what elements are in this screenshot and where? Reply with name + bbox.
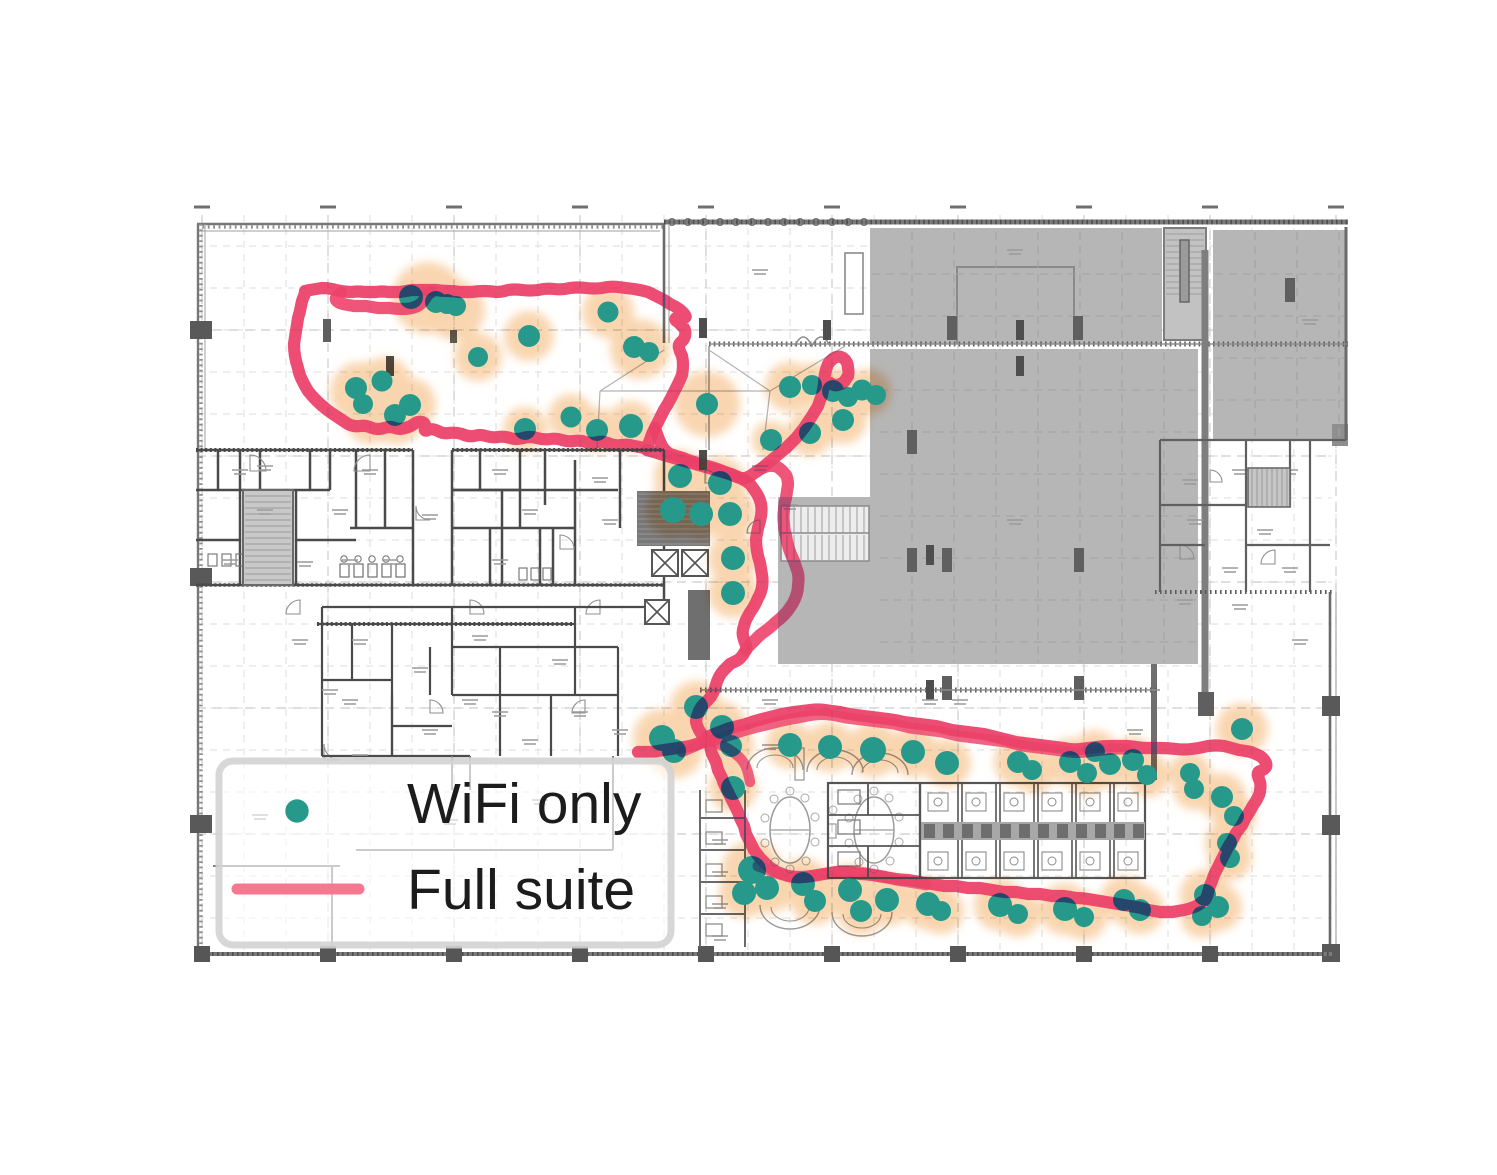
- svg-text:WiFi only: WiFi only: [407, 772, 642, 836]
- svg-text:Full suite: Full suite: [407, 858, 635, 922]
